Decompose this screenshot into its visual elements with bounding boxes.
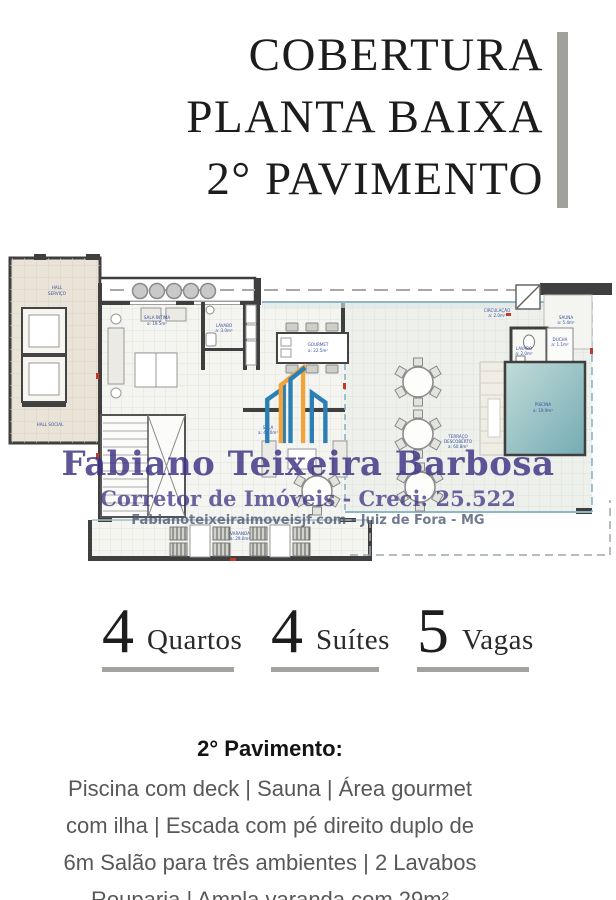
stat-quartos-value: 4 — [102, 604, 134, 658]
svg-text:a: 19.9m²: a: 19.9m² — [533, 408, 553, 413]
svg-text:a: 2.0m²: a: 2.0m² — [488, 313, 506, 318]
description-heading: 2° Pavimento: — [0, 736, 540, 762]
stat-quartos: 4 Quartos — [102, 604, 234, 672]
staircase — [101, 415, 185, 517]
real-estate-flyer: COBERTURA PLANTA BAIXA 2° PAVIMENTO — [0, 0, 616, 900]
stats-row: 4 Quartos 4 Suítes 5 Vagas — [102, 604, 529, 672]
svg-text:a: 2.0m²: a: 2.0m² — [515, 351, 533, 356]
pool: PISCINA a: 19.9m² — [480, 362, 585, 455]
description-line-4: Rouparia | Ampla varanda com 29m² — [0, 881, 540, 900]
description-line-3: 6m Salão para três ambientes | 2 Lavabos — [0, 844, 540, 881]
elevator-2 — [22, 356, 66, 402]
stat-vagas: 5 Vagas — [417, 604, 529, 672]
svg-text:a: 5.4m²: a: 5.4m² — [557, 320, 575, 325]
svg-text:a: 19.5m²: a: 19.5m² — [147, 321, 167, 326]
stat-vagas-label: Vagas — [462, 626, 534, 655]
title-line-2: PLANTA BAIXA — [186, 86, 544, 148]
floor-plan: HALL SERVIÇO HALL SOCIAL — [0, 253, 616, 598]
stat-suites: 4 Suítes — [271, 604, 379, 672]
title-line-3: 2° PAVIMENTO — [186, 148, 544, 210]
svg-text:SERVIÇO: SERVIÇO — [48, 291, 66, 296]
description-line-1: Piscina com deck | Sauna | Área gourmet — [0, 770, 540, 807]
floor-plan-drawing: HALL SERVIÇO HALL SOCIAL — [0, 253, 616, 598]
svg-text:a: 3.0m²: a: 3.0m² — [215, 328, 233, 333]
elevator-1 — [22, 308, 66, 354]
stat-vagas-value: 5 — [417, 604, 449, 658]
stat-quartos-label: Quartos — [147, 626, 242, 655]
room-label-sala-intima: SALA ÍNTIMA — [144, 315, 170, 320]
room-label-hall-servico: HALL — [52, 285, 63, 290]
stat-suites-label: Suítes — [316, 626, 390, 655]
description-line-2: com ilha | Escada com pé direito duplo d… — [0, 807, 540, 844]
svg-text:a: 1.1m²: a: 1.1m² — [551, 342, 569, 347]
title-block: COBERTURA PLANTA BAIXA 2° PAVIMENTO — [186, 24, 568, 210]
svg-text:a: 29.0m²: a: 29.0m² — [230, 536, 250, 541]
room-label-hall-social: HALL SOCIAL — [37, 422, 64, 427]
description: 2° Pavimento: Piscina com deck | Sauna |… — [0, 736, 616, 900]
page-title: COBERTURA PLANTA BAIXA 2° PAVIMENTO — [186, 24, 544, 210]
room-label-piscina: PISCINA — [535, 402, 551, 407]
title-accent-bar — [557, 32, 568, 208]
svg-text:a: 22.5m²: a: 22.5m² — [308, 348, 328, 353]
title-line-1: COBERTURA — [186, 24, 544, 86]
gourmet-island: GOURMET a: 22.5m² — [277, 323, 348, 373]
room-label-gourmet: GOURMET — [308, 342, 329, 347]
svg-text:a: 60.8m²: a: 60.8m² — [448, 444, 468, 449]
stat-suites-value: 4 — [271, 604, 303, 658]
svg-text:a: 45.0m²: a: 45.0m² — [258, 430, 278, 435]
